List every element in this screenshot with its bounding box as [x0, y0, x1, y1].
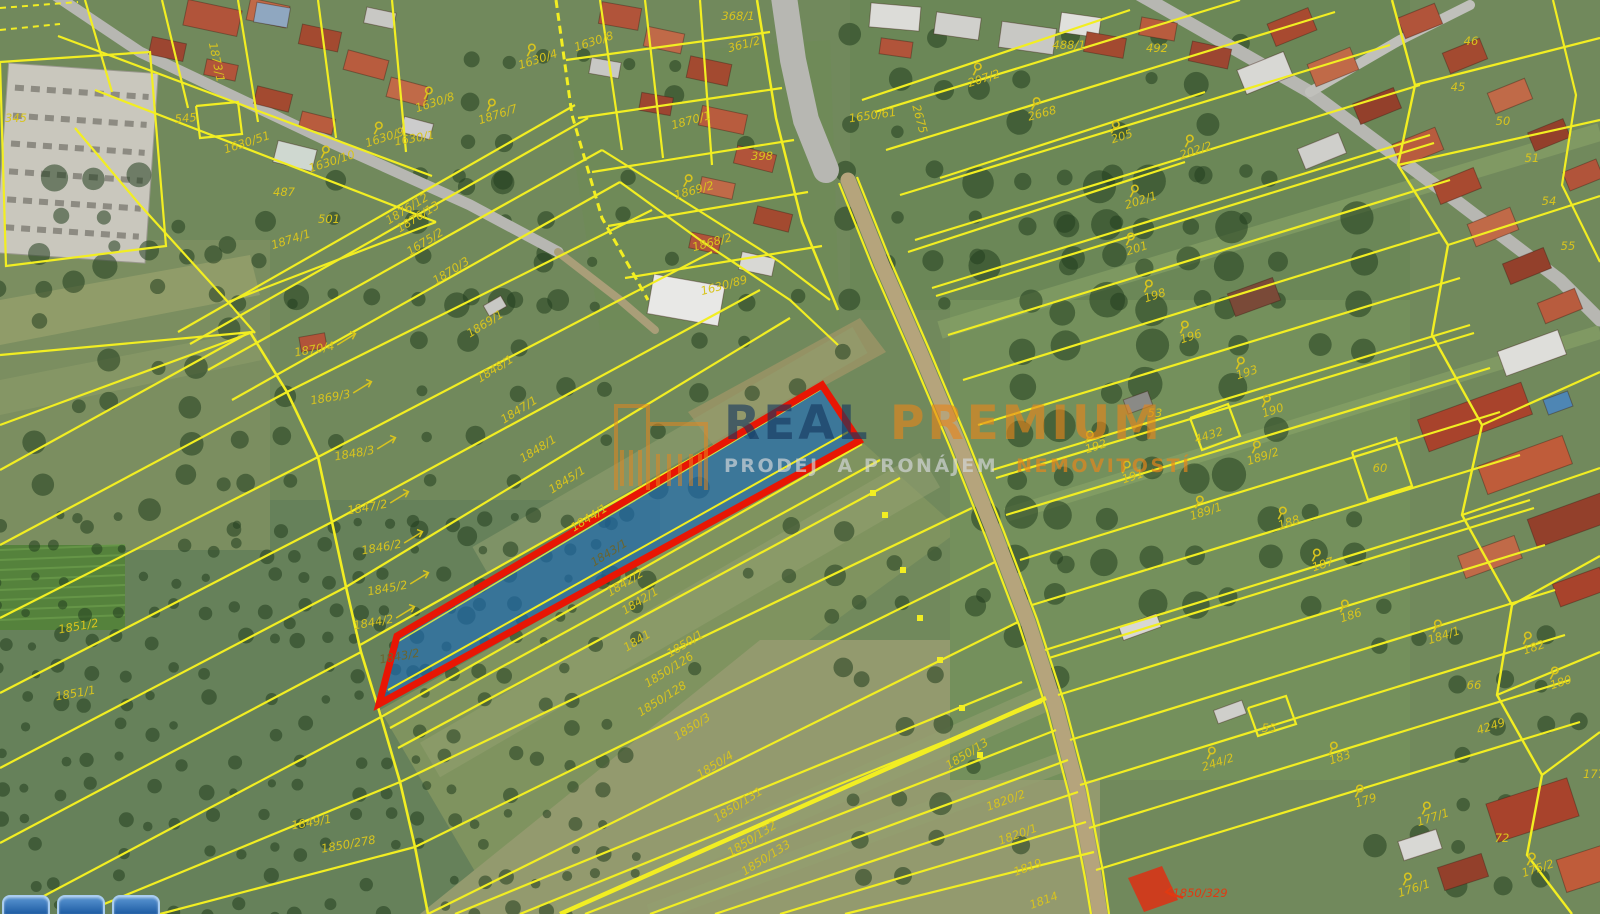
map-control-button-2[interactable] — [57, 895, 105, 914]
cadastral-map-viewport: 1630/13455451630/511630/104875011874/116… — [0, 0, 1600, 914]
parcel-label: 398 — [751, 149, 773, 163]
cemetery — [0, 63, 158, 263]
parcel-label: 53 — [1148, 406, 1163, 420]
parcel-label: 46 — [1464, 34, 1479, 48]
parcel-label: 1850/329 — [1172, 886, 1227, 900]
parcel-label: 51 — [1525, 151, 1540, 165]
map-control-button-3[interactable] — [112, 895, 160, 914]
parcel-label: 345 — [5, 111, 27, 125]
map-control-button-1[interactable] — [2, 895, 50, 914]
parcel-label: 177 — [1583, 767, 1600, 781]
parcel-label: 60 — [1373, 461, 1388, 475]
parcel-label: 66 — [1467, 678, 1482, 692]
parcel-label: 488/1 — [1052, 38, 1085, 52]
parcel-label: 545 — [174, 110, 197, 126]
parcel-label: 72 — [1495, 831, 1510, 845]
parcel-label: 55 — [1561, 239, 1576, 253]
parcel-label: 45 — [1451, 80, 1466, 94]
parcel-label: 368/1 — [721, 9, 754, 23]
cadastral-map[interactable]: 1630/13455451630/511630/104875011874/116… — [0, 0, 1600, 914]
parcel-label: 55 — [1262, 721, 1277, 735]
parcel-label: 54 — [1542, 194, 1557, 208]
parcel-label: 492 — [1146, 41, 1168, 55]
parcel-label: 487 — [273, 185, 296, 199]
parcel-label: 50 — [1496, 114, 1511, 128]
parcel-label: 501 — [318, 212, 340, 226]
